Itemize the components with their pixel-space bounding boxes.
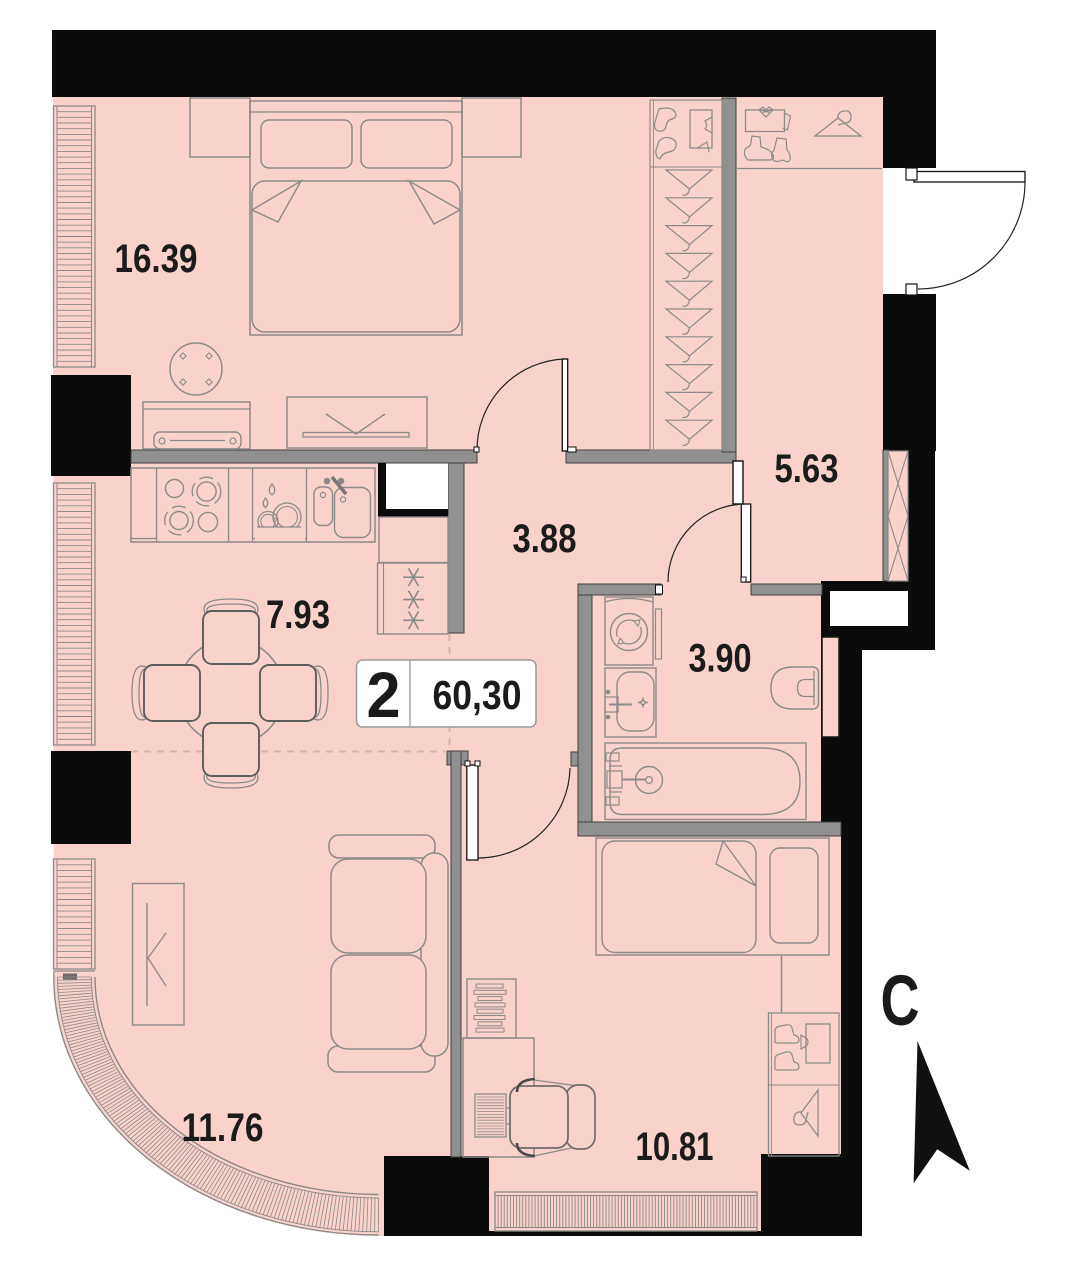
- svg-text:7.93: 7.93: [266, 593, 330, 637]
- svg-text:60,30: 60,30: [433, 672, 522, 718]
- svg-text:3.88: 3.88: [513, 517, 577, 561]
- svg-text:11.76: 11.76: [182, 1106, 264, 1150]
- svg-text:С: С: [881, 962, 920, 1041]
- svg-text:16.39: 16.39: [115, 237, 198, 281]
- svg-text:10.81: 10.81: [636, 1125, 714, 1169]
- svg-text:5.63: 5.63: [775, 447, 839, 491]
- svg-text:3.90: 3.90: [689, 637, 752, 681]
- svg-text:2: 2: [367, 659, 401, 731]
